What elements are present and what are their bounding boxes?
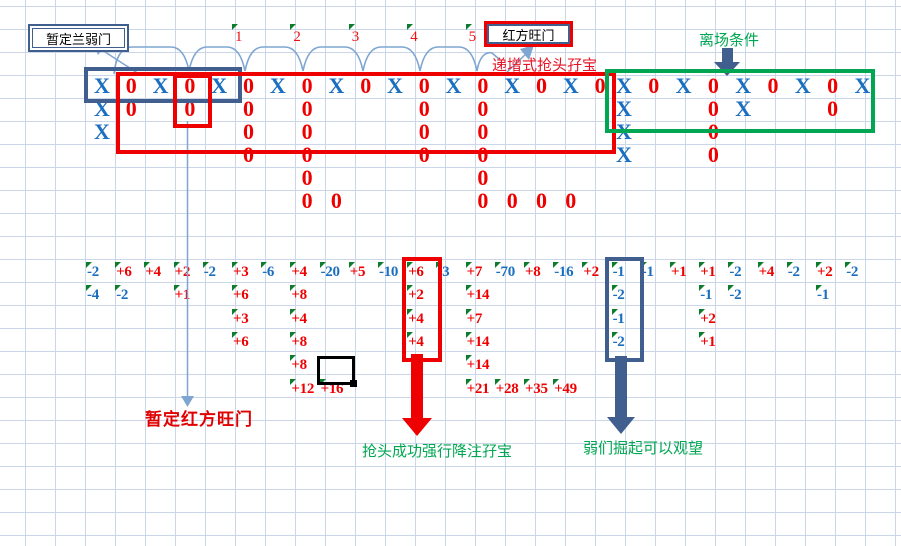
numbers-navy-box[interactable] (605, 257, 644, 362)
navy-thick-down-arrow (607, 356, 635, 434)
strong-door-label-text: 红方旺门 (502, 25, 554, 44)
incremental-double-label[interactable]: 递增式抢头孖宝 (492, 54, 597, 75)
strong-door-label-box[interactable]: 红方旺门 (484, 21, 573, 47)
weak-rise-label[interactable]: 弱们掘起可以观望 (583, 437, 703, 458)
weak-column-red-box[interactable] (173, 74, 212, 128)
numbers-red-box[interactable] (402, 257, 442, 362)
grab-success-label[interactable]: 抢头成功强行降注孖宝 (362, 440, 512, 461)
selection-fill-handle[interactable] (350, 380, 357, 387)
exit-condition-label[interactable]: 离场条件 (699, 29, 759, 50)
red-thick-down-arrow (402, 354, 432, 436)
selection-rect[interactable] (317, 356, 355, 385)
exit-green-box[interactable] (605, 69, 875, 133)
weak-door-label-box[interactable]: 暂定兰弱门 (28, 24, 129, 52)
strong-door-label-inner: 红方旺门 (487, 24, 570, 44)
spreadsheet-canvas: X0X0X0X0X0X0X0X0X0X000000X00000000000000… (0, 0, 901, 546)
weak-door-label-text: 暂定兰弱门 (46, 29, 111, 48)
tentative-strong-label[interactable]: 暂定红方旺门 (145, 405, 253, 430)
